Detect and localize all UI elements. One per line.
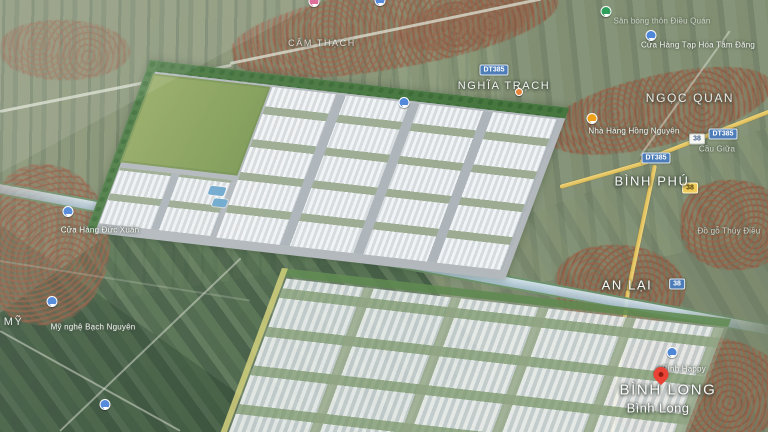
blue-poi-pin[interactable] — [63, 206, 74, 217]
pink-poi-pin[interactable] — [309, 0, 320, 7]
blue-poi-pin[interactable] — [47, 296, 58, 307]
blue-poi-pin[interactable] — [100, 399, 111, 410]
blue-poi-pin[interactable] — [399, 97, 410, 108]
map-poi-label[interactable]: Cửa Hàng Đức Xuân — [61, 226, 140, 235]
map-place-label[interactable]: BÌNH PHÚ — [615, 174, 690, 189]
map-pins-layer — [0, 0, 768, 432]
map-place-label[interactable]: AN LẠI — [602, 278, 653, 293]
map-poi-label[interactable]: Cửa Hàng Tạp Hóa Tâm Đăng — [641, 41, 755, 50]
orange-poi-pin[interactable] — [587, 113, 598, 124]
map-place-label[interactable]: BÌNH LONG — [620, 382, 717, 399]
map-place-label[interactable]: NGHĨA TRẠCH — [458, 80, 551, 92]
map-poi-label[interactable]: Sân bóng thôn Điều Quán — [613, 17, 710, 26]
map-place-label[interactable]: AN MỸ — [0, 316, 23, 328]
map-poi-label[interactable]: Đồ gỗ Thúy Điều — [698, 227, 761, 236]
green-poi-pin[interactable] — [601, 6, 612, 17]
orange-poi-dot[interactable] — [515, 88, 523, 96]
map-place-label[interactable]: CẨM THẠCH — [288, 38, 356, 48]
map-poi-label[interactable]: Cầu Giữa — [699, 145, 735, 154]
road-shield: DT385 — [641, 153, 670, 164]
blue-poi-pin[interactable] — [375, 0, 386, 6]
road-shield: DT385 — [479, 65, 508, 76]
map-place-label[interactable]: Bình Long — [627, 401, 690, 416]
road-shield: DT385 — [708, 129, 737, 140]
road-shield: 38 — [669, 279, 685, 290]
blue-poi-pin[interactable] — [667, 347, 678, 358]
map-poi-label[interactable]: Nhà Hàng Hồng Nguyên — [588, 127, 679, 136]
road-shield: 38 — [689, 134, 705, 145]
blue-poi-pin[interactable] — [646, 30, 657, 41]
map-canvas[interactable]: CẨM THẠCHNGHĨA TRẠCHNGỌC QUANBÌNH PHÚAN … — [0, 0, 768, 432]
map-place-label[interactable]: NGỌC QUAN — [646, 91, 734, 105]
map-poi-label[interactable]: Mỹ nghệ Bạch Nguyên — [51, 323, 136, 332]
